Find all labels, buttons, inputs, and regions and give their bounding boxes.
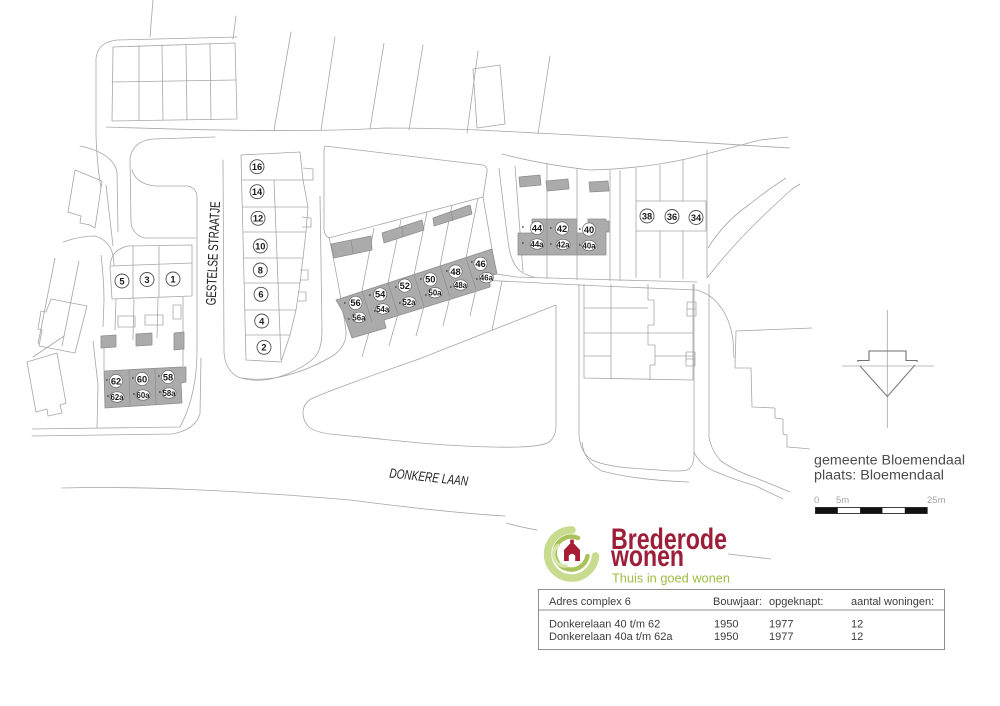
- svg-text:42a: 42a: [556, 241, 570, 250]
- svg-text:plaats: Bloemendaal: plaats: Bloemendaal: [814, 468, 944, 483]
- svg-text:12: 12: [253, 214, 263, 224]
- svg-text:56: 56: [350, 298, 360, 308]
- svg-text:3: 3: [144, 275, 149, 285]
- svg-text:40: 40: [584, 225, 594, 235]
- svg-text:54a: 54a: [376, 305, 390, 314]
- svg-text:1950: 1950: [714, 631, 738, 643]
- svg-text:34: 34: [691, 213, 702, 223]
- svg-text:52: 52: [400, 281, 410, 291]
- svg-text:wonen: wonen: [610, 540, 684, 573]
- svg-text:Adres complex 6: Adres complex 6: [549, 596, 631, 608]
- svg-text:opgeknapt:: opgeknapt:: [769, 596, 823, 608]
- svg-text:1977: 1977: [769, 631, 793, 643]
- svg-text:52a: 52a: [402, 298, 416, 307]
- svg-text:46a: 46a: [480, 274, 494, 283]
- svg-text:56a: 56a: [352, 313, 366, 322]
- svg-text:10: 10: [255, 241, 265, 251]
- svg-text:38: 38: [642, 211, 652, 221]
- svg-text:42: 42: [557, 224, 567, 234]
- svg-text:aantal woningen:: aantal woningen:: [851, 596, 934, 608]
- svg-text:36: 36: [667, 212, 677, 222]
- svg-text:8: 8: [258, 265, 263, 275]
- svg-text:4: 4: [259, 316, 265, 326]
- svg-text:48: 48: [450, 267, 460, 277]
- svg-text:6: 6: [258, 290, 263, 300]
- svg-text:1950: 1950: [714, 619, 738, 631]
- svg-text:Donkerelaan 40a t/m 62a: Donkerelaan 40a t/m 62a: [549, 631, 673, 643]
- svg-text:16: 16: [252, 162, 262, 172]
- svg-text:0: 0: [814, 495, 819, 506]
- svg-text:5m: 5m: [836, 495, 849, 506]
- svg-text:44a: 44a: [530, 240, 544, 249]
- svg-text:2: 2: [261, 343, 266, 353]
- svg-text:40a: 40a: [582, 242, 596, 251]
- svg-text:60a: 60a: [136, 391, 150, 400]
- svg-text:58: 58: [163, 372, 173, 382]
- svg-text:25m: 25m: [927, 495, 946, 506]
- svg-text:54: 54: [375, 290, 386, 300]
- svg-text:62a: 62a: [110, 393, 124, 402]
- svg-text:60: 60: [137, 374, 147, 384]
- svg-text:62: 62: [111, 376, 121, 386]
- svg-text:46: 46: [475, 259, 485, 269]
- svg-text:Donkerelaan 40 t/m 62: Donkerelaan 40 t/m 62: [549, 619, 660, 631]
- svg-text:14: 14: [252, 187, 263, 197]
- svg-text:1977: 1977: [769, 619, 793, 631]
- svg-text:gemeente Bloemendaal: gemeente Bloemendaal: [814, 453, 965, 468]
- svg-text:12: 12: [851, 619, 863, 631]
- svg-text:Bouwjaar:: Bouwjaar:: [713, 596, 762, 608]
- svg-text:48a: 48a: [454, 281, 468, 290]
- svg-text:Thuis in goed wonen: Thuis in goed wonen: [612, 572, 730, 586]
- svg-text:58a: 58a: [162, 389, 176, 398]
- svg-text:50a: 50a: [428, 289, 442, 298]
- svg-text:12: 12: [851, 631, 863, 643]
- svg-text:5: 5: [119, 276, 124, 286]
- svg-text:1: 1: [170, 274, 175, 284]
- svg-text:50: 50: [425, 275, 435, 285]
- svg-text:44: 44: [532, 223, 543, 233]
